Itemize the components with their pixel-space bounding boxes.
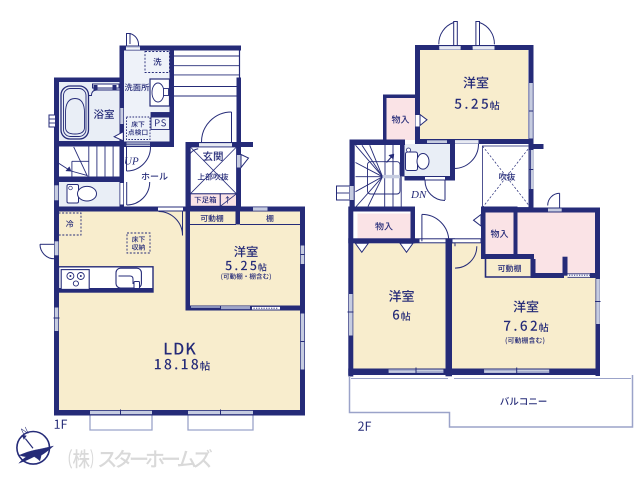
- svg-text:DN: DN: [410, 189, 427, 201]
- svg-text:UP: UP: [124, 156, 139, 168]
